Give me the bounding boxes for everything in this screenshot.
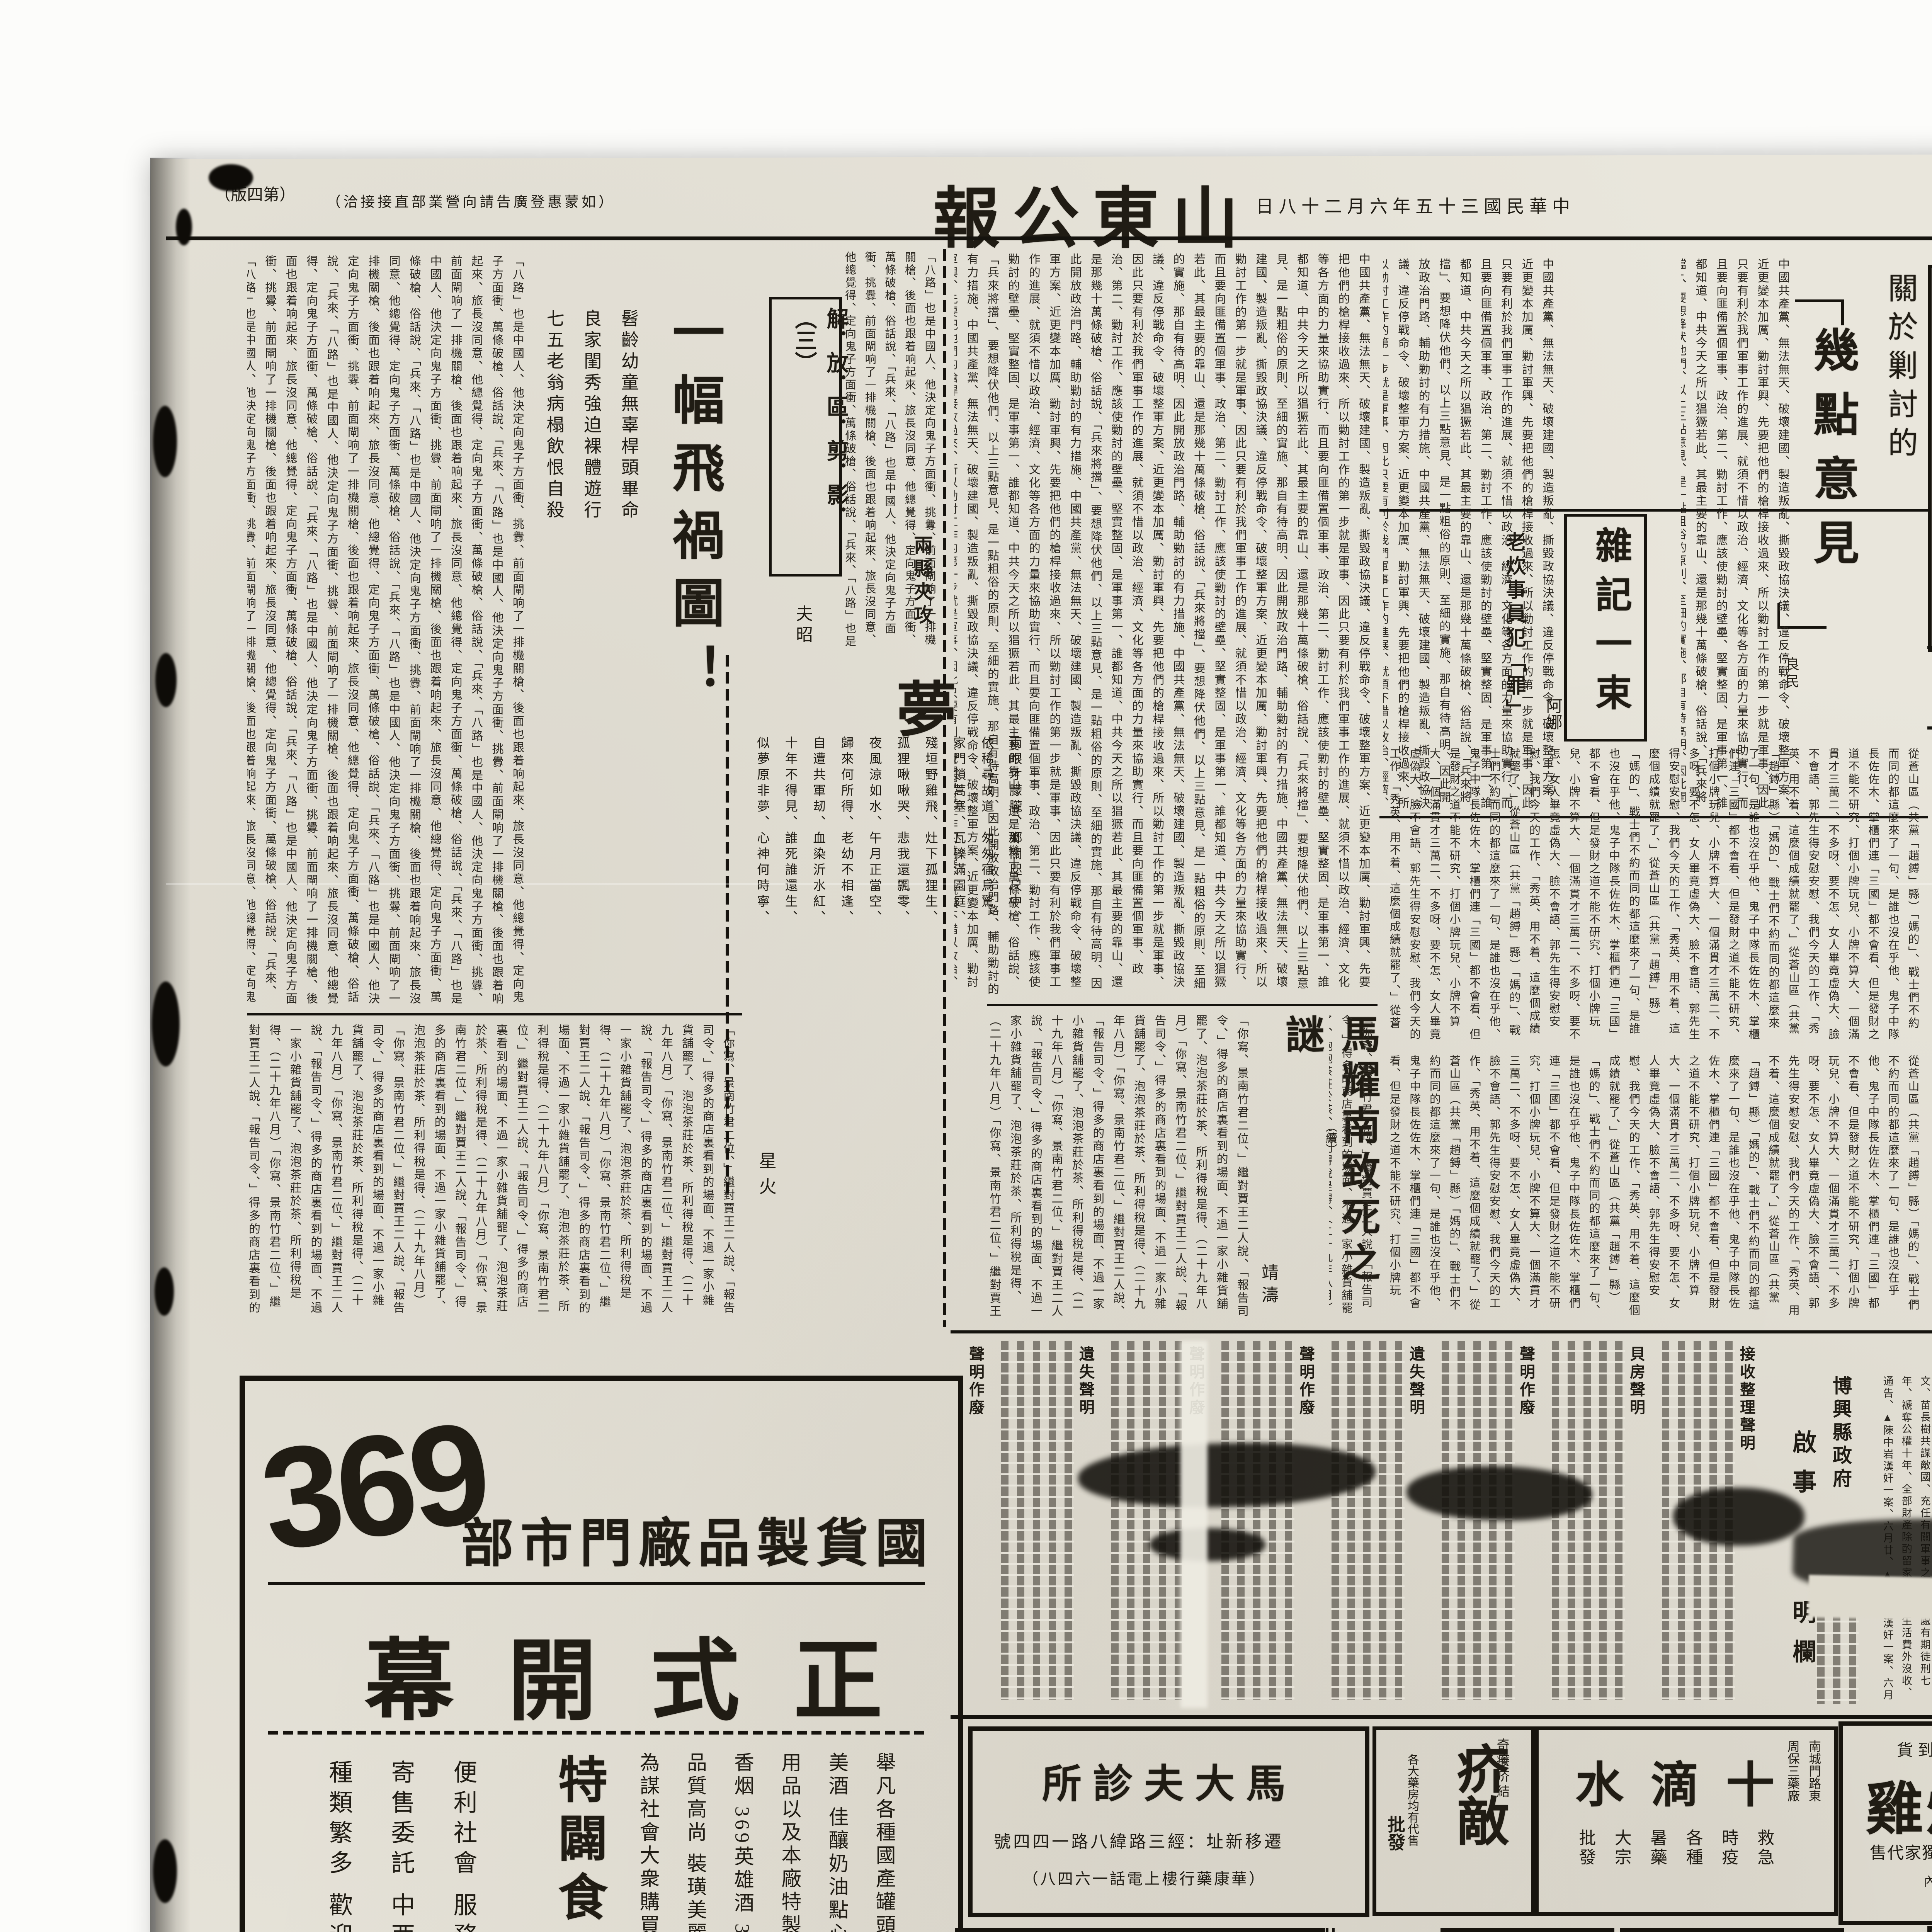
- list-item: 便利社會 服務大衆: [431, 1760, 493, 1932]
- ma-byline: 靖濤: [1256, 1264, 1281, 1308]
- shidi-pairs: 救急時疫各種暑藥大宗批發: [1568, 1829, 1782, 1895]
- linsu-ad-box: 四大馬路緯二路友光大藥房獨家專售 專治雷淋火淋赤淋白濁急性淋慢性淋膀胱炎尿道炎小…: [1133, 1928, 1325, 1932]
- ma-rule: [987, 1004, 1378, 1006]
- factory-brand-numerals: 369: [252, 1389, 495, 1583]
- zaji-body: 從蒼山區（共黨「趙鎛」縣）「媽的」、戰士們不約而同的都這麼來了一句、是誰也沒在乎…: [1387, 748, 1922, 1041]
- dongchang-ad-box: 貨到又現名馳已久 雞燻昌東 售代家獨香品異過對會年青 內號泰復路北緯小: [1838, 1721, 1932, 1925]
- jiefang-box-title: 解．放．區．剪．影．（三）: [788, 307, 851, 562]
- dongchang-kicker: 貨到又現名馳已久: [1897, 1737, 1932, 1761]
- list-item: 寄售委託 中西食物: [369, 1760, 431, 1932]
- list-item: 夜風涼如水、午月正當空、: [860, 736, 888, 1169]
- masthead-date: 日八十二月六年五十三國民華中: [1256, 192, 1575, 218]
- notice-col-8: 聲明作廢: [964, 1339, 1054, 1419]
- list-item: 孤狸啾啾哭、悲我還飄零、: [888, 736, 916, 1169]
- spine-blot-2: [155, 653, 177, 707]
- left-lower-body: 「你寫、景南竹君二位、」繼對賈王二人說、「報告司令、」得多的商店裏看到的場面、不…: [247, 1024, 738, 1318]
- zaji-subhead: 老炊事員犯「罪」: [1499, 531, 1528, 740]
- madaifu-line2: （八四六一話電上樓行藥康華）: [1023, 1866, 1266, 1889]
- poem-byline: 星火: [753, 1151, 779, 1202]
- dongchang-line2: 內號泰復路北緯小: [1924, 1872, 1932, 1889]
- list-item: 批發: [1568, 1829, 1603, 1895]
- corner-blot-top2: [176, 209, 192, 245]
- list-item: 十年不得見、誰死誰還生、: [776, 736, 804, 1169]
- jiedi-corner: 批發: [1382, 1815, 1408, 1851]
- jiefang-body-col-2: 「八路」也是中國人、他決定向鬼子方面衝、挑釁、前面閘响了一排機關槍、後面也跟着响…: [844, 251, 939, 649]
- qishi-header: 啟事: [1784, 1430, 1819, 1509]
- list-item: 救急: [1746, 1829, 1782, 1895]
- opinion-body-col-b: 中國共產黨、無法無天、破壞建國、製造叛亂、撕毀政協決議、違反停戰命令、破壞整軍方…: [1383, 258, 1557, 811]
- zaji-title: 雜記一束: [1584, 526, 1637, 727]
- shidi-ad-box: 南城門路東 周保三藥廠 水滴十 救急時疫各種暑藥大宗批發: [1535, 1726, 1838, 1916]
- corner-blot-top: [209, 164, 253, 191]
- spine-blot-1: [153, 406, 177, 477]
- ma-body: 「你寫、景南竹君二位、」繼對賈王二人說、「報告司令、」得多的商店裏看到的場面、不…: [989, 1014, 1252, 1323]
- zigzag-divider-poem: [726, 655, 729, 1196]
- list-item: 家門鎖蒿塞、瓦礫滿園庭、: [944, 736, 972, 1169]
- factory-slogans: 便利社會 服務大衆寄售委託 中西食物種類繁多 歡迎選擇: [307, 1760, 494, 1932]
- yinxing-ad-box: 爽神解熱 銀星汽水 人人歡喜喝 人人說他好 六五八二話電 號一二七樹槐大北 址廠…: [1927, 1926, 1932, 1932]
- spine-blot-3: [152, 981, 180, 1066]
- opinion-body-col-a: 中國共產黨、無法無天、破壞建國、製造叛亂、撕毀政協決議、違反停戰命令、破壞整軍方…: [1681, 258, 1793, 811]
- ad-contact-note: （洽接接直部業營向請告廣登惠蒙如）: [327, 190, 616, 211]
- dongchang-name: 雞燻昌東: [1866, 1762, 1932, 1845]
- list-item: 用品以及本廠特製品 369香烟建國牌: [765, 1752, 813, 1932]
- list-item: 美酒 佳釀奶油點心 饋贈禮物 家庭: [813, 1752, 860, 1932]
- jiedi-name: 疥敵: [1440, 1742, 1516, 1846]
- factory-name: 部市門廠品製貨國: [461, 1501, 934, 1577]
- shidi-maker-line1: 南城門路東: [1805, 1740, 1823, 1802]
- honglong-ad-box: 調味精華原料純良 紅龍醬油 人人必需 家家必備 場造釀 買可處隨銷代有均內市 號…: [955, 1928, 1133, 1932]
- list-item: 良家閨秀強迫裸體遊行: [573, 309, 610, 618]
- issue-rule-top: [1927, 646, 1932, 649]
- factory-feature: 特闢食品委託部: [543, 1754, 614, 1932]
- list-item: 時疫: [1711, 1829, 1746, 1895]
- masthead-title: 報公東山: [933, 164, 1252, 261]
- notice-col-7: 遺失聲明: [1074, 1339, 1164, 1419]
- list-item: 大宗: [1603, 1829, 1639, 1895]
- madaifu-line1: 號四四一路八緯路三經：址新移遷: [994, 1828, 1284, 1852]
- row2-dotted-divider: [1611, 1928, 1614, 1932]
- dongchang-line1: 售代家獨香品異過對會年青: [1870, 1840, 1932, 1864]
- ink-smear-4: [1150, 1528, 1265, 1561]
- gov-greek: [1816, 1611, 1859, 1704]
- notices-rule-top: [951, 1330, 1932, 1333]
- guangxing-ad-box: 普利門外青年會西路北 廣興義茶莊 提倡門市各貨一律提高 新茶賤售高茶格外廉價 電…: [1620, 1928, 1844, 1932]
- xianmin-ad-box: 憲民診療所 專治花柳淋病一切外科 商埠小緯北路復泰棧內: [1440, 1928, 1612, 1932]
- left-divider-rule: [247, 1013, 742, 1015]
- notice-col-5: 聲明作廢: [1294, 1339, 1384, 1419]
- ink-smear-3: [1673, 1488, 1804, 1546]
- madaifu-ad-box: 所診夫大馬 號四四一路八緯路三經：址新移遷 （八四六一話電上樓行藥康華）: [968, 1726, 1369, 1917]
- zaji-byline: 阿娜: [1541, 697, 1565, 730]
- list-item: 七五老翁病榻飲恨自殺: [535, 309, 573, 618]
- jiefang-subheads: 髫齡幼童無辜桿頭畢命良家閨秀強迫裸體遊行七五老翁病榻飲恨自殺: [535, 309, 647, 618]
- masthead-rule: [166, 236, 1932, 240]
- jiefang-title-box: 解．放．區．剪．影．（三）: [769, 297, 842, 577]
- poem-lines: 兩眼才朦朧、鄉關咫尺中、依稀尋故道、匆匆宿鳥驚、家門鎖蒿塞、瓦礫滿園庭、殘垣野雞…: [748, 736, 1028, 1169]
- crease-light: [1180, 1341, 1207, 1708]
- spine-blot-4: [155, 1267, 174, 1316]
- list-item: 為謀社會大衆購買及推銷便利: [624, 1752, 671, 1932]
- jiefang-body-col: 「八路」也是中國人、他決定向鬼子方面衝、挑釁、前面閘响了一排機關槍、後面也跟着响…: [247, 255, 527, 1009]
- ma-side-col: 「你寫、景南竹君二位、」繼對賈王二人說、「報告司令、」得多的商店裏看到的場面、不…: [1329, 1014, 1376, 1323]
- jiefang-headline: 一幅飛禍圖！: [655, 305, 731, 877]
- list-item: 殘垣野雞飛、灶下孤狸生、: [916, 736, 944, 1169]
- opinion-bracket-top: [1795, 299, 1844, 325]
- list-item: 香烟 369英雄酒 369瓜子 369糖果等: [718, 1752, 765, 1932]
- list-item: 舉凡各種國產罐頭 食物糖果 餅乾: [860, 1752, 907, 1932]
- row2-vrule-a: [1326, 1928, 1328, 1932]
- list-item: 歸來何所得、老幼不相逢、: [832, 736, 860, 1169]
- issue-rule-bottom: [1927, 726, 1932, 730]
- opinion-headline: 幾點意見: [1799, 327, 1865, 643]
- torch-graphic-box: 火炬: [1928, 265, 1932, 652]
- madaifu-name: 所診夫大馬: [1042, 1752, 1297, 1809]
- poem-title: 夢: [877, 678, 964, 738]
- opinion-kicker: 關於剿討的: [1879, 272, 1922, 512]
- factory-ad-box: 369 部市門廠品製貨國 幕開式正 舉凡各種國產罐頭 食物糖果 餅乾美酒 佳釀奶…: [240, 1376, 963, 1932]
- zaji-title-box: 雜記一束: [1564, 514, 1647, 742]
- divider-rule-1: [1379, 509, 1928, 512]
- list-item: 髫齡幼童無辜桿頭畢命: [610, 309, 647, 618]
- jiefang-byline: 夫昭: [790, 605, 815, 646]
- fold-line-2: [166, 883, 1932, 885]
- notice-col-3: 聲明作廢: [1515, 1339, 1604, 1419]
- factory-open: 幕開式正: [365, 1609, 937, 1738]
- row1-rule-top: [951, 1715, 1932, 1719]
- newspaper-scan: （版四第） （洽接接直部業營向請告廣登惠蒙如） 報公東山 日八十二月六年五十三國…: [0, 0, 1932, 1932]
- notice-col-2: 貝房聲明: [1625, 1339, 1714, 1419]
- list-item: 種類繁多 歡迎選擇: [307, 1760, 369, 1932]
- list-item: 各種: [1675, 1829, 1710, 1895]
- list-item: 暑藥: [1639, 1829, 1675, 1895]
- shidi-name: 水滴十: [1575, 1746, 1801, 1816]
- spine-blot-5: [153, 1839, 177, 1903]
- list-item: 自遭共軍刼、血染沂水紅、: [804, 736, 832, 1169]
- zaji-body-2: 從蒼山區（共黨「趙鎛」縣）「媽的」、戰士們不約而同的都這麼來了一句、是誰也沒在乎…: [1387, 1055, 1922, 1321]
- list-item: 似夢原非夢、心神何時寧、: [748, 736, 776, 1169]
- factory-item-cols: 舉凡各種國產罐頭 食物糖果 餅乾美酒 佳釀奶油點心 饋贈禮物 家庭用品以及本廠特…: [624, 1752, 907, 1932]
- list-item: 品質高尚 裝璜美麗 送禮自用 兩相咸宜: [671, 1752, 718, 1932]
- row2-vrule-b: [1332, 1928, 1335, 1932]
- notice-col-4: 遺失聲明: [1405, 1339, 1494, 1419]
- jiedi-ad-box: 奇癢疥結 疥敵 各大藥房均有代售 批發: [1372, 1726, 1535, 1916]
